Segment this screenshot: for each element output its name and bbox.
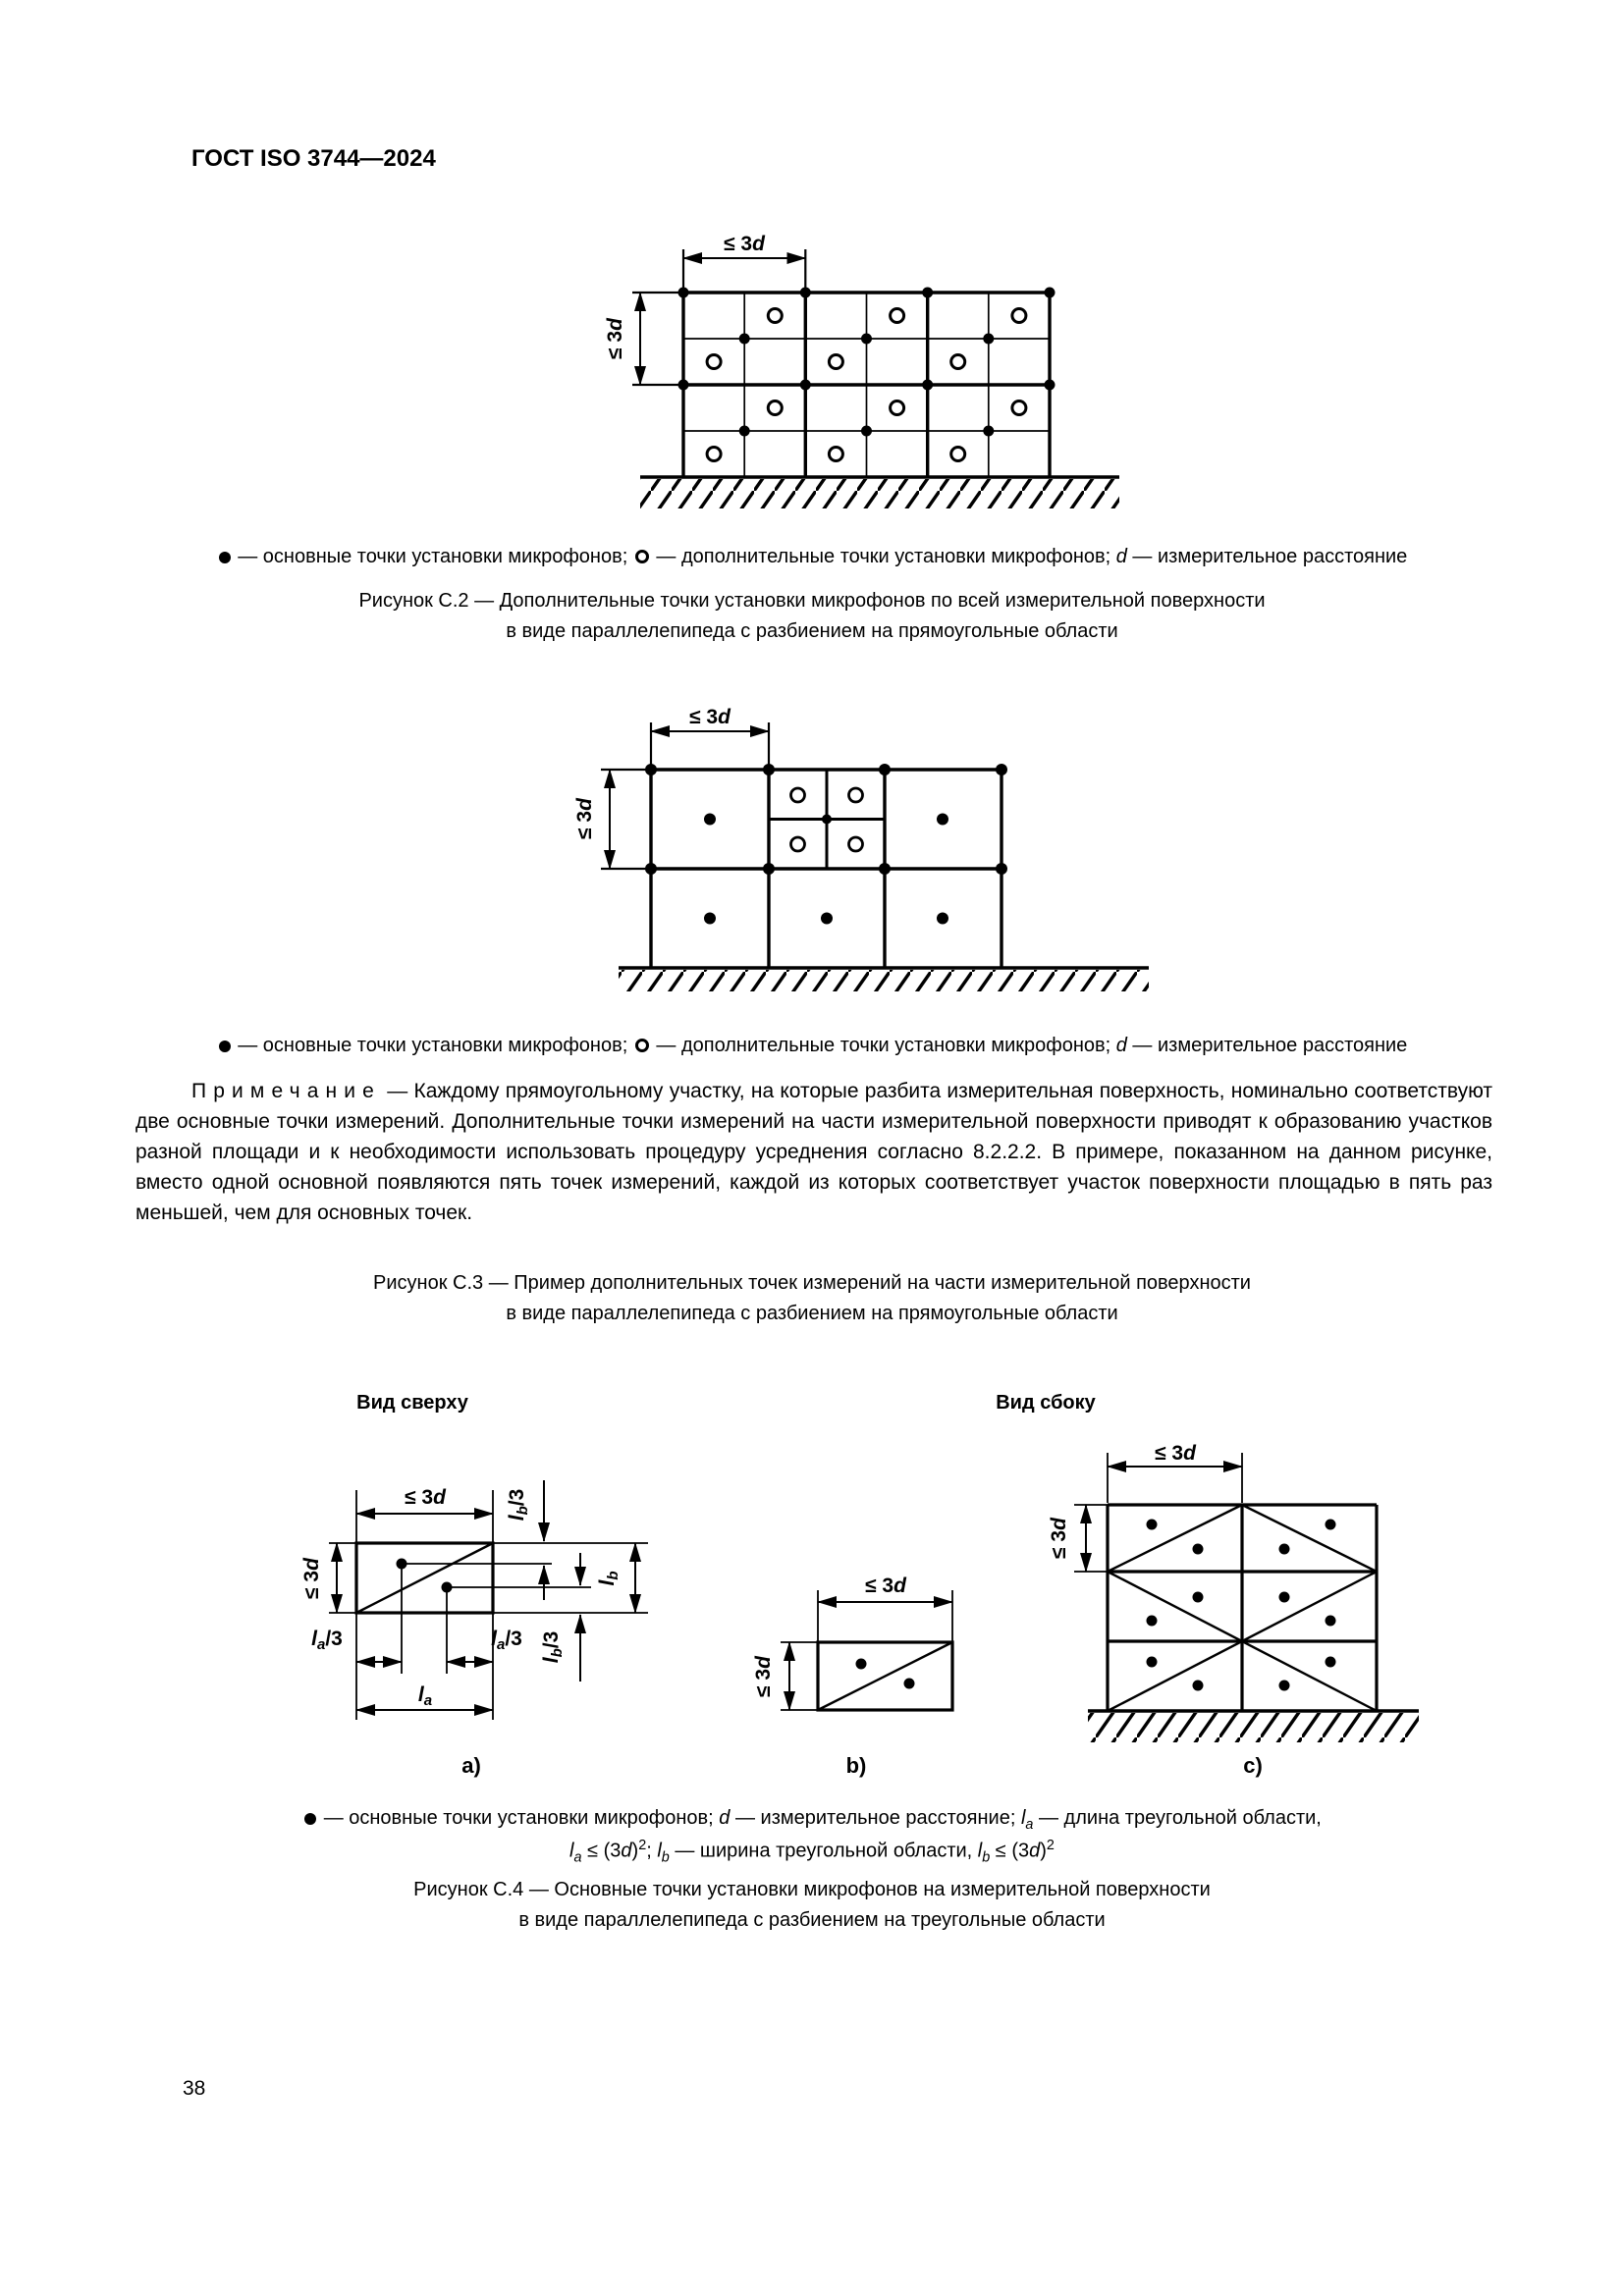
microphone-point [996, 764, 1007, 775]
microphone-point [879, 863, 891, 875]
dim-label-3d: ≤ 3d [865, 1575, 907, 1597]
figure-c2-caption-line1: Рисунок С.2 — Дополнительные точки устан… [128, 590, 1496, 613]
microphone-point [1193, 1681, 1204, 1691]
dimension-3d-horizontal: ≤ 3d [818, 1575, 952, 1602]
symbol-d: d [1116, 546, 1127, 567]
dim-label-lb3: lb/3 [506, 1489, 531, 1522]
main-point-symbol [219, 552, 231, 563]
additional-point [1012, 401, 1026, 415]
figure-c4-legend-line2: la ≤ (3d)2; lb — ширина треугольной обла… [128, 1838, 1496, 1866]
figure-c4-caption-line1: Рисунок С.4 — Основные точки установки м… [128, 1879, 1496, 1901]
dimension-la: la [356, 1683, 493, 1710]
additional-point [791, 837, 805, 851]
view-side-label: Вид сбоку [947, 1392, 1144, 1415]
figure-c4-caption-line2: в виде параллелепипеда с разбиением на т… [128, 1909, 1496, 1932]
dimension-lb: lb [596, 1543, 635, 1613]
additional-point [768, 309, 782, 323]
dim-label-lb: lb [596, 1571, 622, 1585]
microphone-point [739, 334, 750, 345]
microphone-point [1326, 1616, 1336, 1627]
figure-c2-caption-line2: в виде параллелепипеда с разбиением на п… [128, 620, 1496, 643]
microphone-point [856, 1659, 867, 1670]
dim-label-la3: la/3 [311, 1628, 343, 1653]
ground-hatching [640, 479, 1119, 508]
dim-label-la: la [418, 1683, 432, 1709]
additional-point [849, 837, 863, 851]
le-3d-open: ≤ (3 [582, 1841, 622, 1862]
additional-point [951, 448, 965, 461]
microphone-point [1279, 1592, 1290, 1603]
legend-main-text: — основные точки установки микрофонов; [233, 546, 633, 567]
note-paragraph: Примечание — Каждому прямоугольному учас… [135, 1076, 1492, 1228]
legend-distance-text: — измерительное расстояние [1127, 1035, 1407, 1056]
microphone-point [1147, 1520, 1158, 1530]
legend-additional-text: — дополнительные точки установки микрофо… [651, 1035, 1116, 1056]
subfigure-a: ≤ 3d ≤ 3d lb/3 lb/3 lb la/3 [300, 1480, 648, 1778]
dimension-lb3-top: lb/3 [506, 1480, 544, 1600]
dimension-3d-horizontal: ≤ 3d [651, 706, 769, 768]
additional-point [829, 355, 842, 369]
microphone-point [1045, 288, 1056, 298]
subfigure-c: ≤ 3d ≤ 3d c) [1048, 1443, 1419, 1778]
dim-label-3d: ≤ 3d [573, 797, 596, 839]
additional-point-symbol [635, 1039, 649, 1052]
microphone-point [1193, 1544, 1204, 1555]
document-page: ГОСТ ISO 3744—2024 [0, 0, 1624, 2296]
subfigure-a-label: a) [461, 1753, 481, 1778]
page-header: ГОСТ ISO 3744—2024 [191, 145, 436, 173]
dimension-3d-vertical: ≤ 3d [300, 1543, 337, 1613]
grid-main-lines [1108, 1505, 1377, 1711]
additional-point-symbol [635, 550, 649, 563]
legend-distance-text: — измерительное расстояние; [730, 1807, 1021, 1829]
note-label: Примечание [191, 1080, 381, 1102]
microphone-point [861, 426, 872, 437]
microphone-point [704, 913, 716, 925]
additional-point [849, 788, 863, 802]
microphone-point [800, 380, 811, 391]
microphone-point [1147, 1657, 1158, 1668]
microphone-point [442, 1582, 453, 1593]
additional-point [829, 448, 842, 461]
dimension-3d-horizontal: ≤ 3d [1108, 1443, 1242, 1503]
additional-point [768, 401, 782, 415]
triangle-diagonal [356, 1543, 493, 1613]
ground-hatching [1088, 1713, 1419, 1742]
microphone-point [821, 913, 833, 925]
symbol-la-sub: a [574, 1850, 582, 1866]
microphone-point [704, 814, 716, 826]
dim-label-3d: ≤ 3d [1048, 1517, 1070, 1559]
subfigure-c-label: c) [1243, 1753, 1263, 1778]
additional-point [951, 355, 965, 369]
dim-label-lb3: lb/3 [540, 1631, 566, 1664]
symbol-d: d [719, 1807, 730, 1829]
triangle-diagonal [818, 1642, 952, 1710]
microphone-point [1193, 1592, 1204, 1603]
dim-label-3d: ≤ 3d [604, 317, 626, 359]
legend-additional-text: — дополнительные точки установки микрофо… [651, 546, 1116, 567]
dimension-3d-vertical: ≤ 3d [752, 1642, 789, 1710]
microphone-point [1279, 1544, 1290, 1555]
main-point-symbol [219, 1041, 231, 1052]
microphone-point [904, 1679, 915, 1689]
dimension-3d-vertical: ≤ 3d [1048, 1505, 1108, 1572]
view-top-label: Вид сверху [314, 1392, 511, 1415]
legend-main-text: — основные точки установки микрофонов; [233, 1035, 633, 1056]
microphone-point [922, 380, 933, 391]
dimension-lb3-bottom: lb/3 [540, 1553, 580, 1682]
microphone-point [1045, 380, 1056, 391]
dimension-3d-horizontal: ≤ 3d [683, 233, 805, 291]
subfigure-b-label: b) [846, 1753, 867, 1778]
dim-label-3d: ≤ 3d [405, 1486, 447, 1509]
legend-distance-text: — измерительное расстояние [1127, 546, 1407, 567]
subfigure-b: ≤ 3d ≤ 3d b) [752, 1575, 952, 1778]
microphone-point [1326, 1520, 1336, 1530]
main-point-symbol [304, 1813, 316, 1825]
symbol-d: d [1116, 1035, 1127, 1056]
dim-label-3d: ≤ 3d [724, 233, 766, 255]
squared: 2 [1047, 1838, 1055, 1853]
dim-label-3d: ≤ 3d [300, 1557, 323, 1599]
microphone-point [937, 814, 948, 826]
squared: 2 [638, 1838, 646, 1853]
symbol-d: d [621, 1841, 631, 1862]
microphone-point [937, 913, 948, 925]
microphone-point [397, 1559, 407, 1570]
extension-lines [781, 1590, 952, 1710]
separator: ; [646, 1841, 657, 1862]
figure-c2-legend: — основные точки установки микрофонов; —… [128, 546, 1496, 568]
microphone-point [739, 426, 750, 437]
dim-label-3d: ≤ 3d [689, 706, 731, 728]
dim-label-3d: ≤ 3d [752, 1655, 775, 1697]
dim-label-la3: la/3 [491, 1628, 522, 1653]
dimension-la3-right: la/3 [447, 1628, 522, 1662]
dimension-3d-horizontal: ≤ 3d [356, 1486, 493, 1514]
additional-point [1012, 309, 1026, 323]
microphone-point [1279, 1681, 1290, 1691]
microphone-point [763, 863, 775, 875]
dimension-3d-vertical: ≤ 3d [573, 770, 651, 869]
microphone-point [983, 426, 994, 437]
additional-point [707, 355, 721, 369]
figure-c4-diagram: ≤ 3d ≤ 3d lb/3 lb/3 lb la/3 [147, 1443, 1492, 1782]
ground-hatching [619, 970, 1149, 991]
figure-c2-diagram: ≤ 3d ≤ 3d [589, 226, 1159, 510]
figure-c4-legend-line1: — основные точки установки микрофонов; d… [128, 1807, 1496, 1833]
figure-c3-legend: — основные точки установки микрофонов; —… [128, 1035, 1496, 1057]
microphone-point [983, 334, 994, 345]
additional-point [791, 788, 805, 802]
symbol-d: d [1029, 1841, 1040, 1862]
close-paren: ) [1040, 1841, 1047, 1862]
dimension-3d-vertical: ≤ 3d [604, 293, 683, 385]
microphone-point [861, 334, 872, 345]
microphone-point [996, 863, 1007, 875]
dim-label-3d: ≤ 3d [1155, 1443, 1197, 1465]
additional-point [891, 309, 904, 323]
additional-point [891, 401, 904, 415]
figure-c3-diagram: ≤ 3d ≤ 3d [560, 677, 1159, 991]
microphone-point [1326, 1657, 1336, 1668]
page-number: 38 [183, 2077, 205, 2101]
figure-c3-caption-line1: Рисунок С.3 — Пример дополнительных точе… [128, 1272, 1496, 1295]
legend-main-text: — основные точки установки микрофонов; [318, 1807, 719, 1829]
legend-width-text: — ширина треугольной области, [670, 1841, 978, 1862]
microphone-point [922, 288, 933, 298]
legend-length-text: — длина треугольной области, [1033, 1807, 1321, 1829]
microphone-point [879, 764, 891, 775]
le-3d-open: ≤ (3 [990, 1841, 1029, 1862]
extension-lines [329, 1490, 648, 1720]
additional-point [707, 448, 721, 461]
microphone-point [822, 815, 832, 825]
symbol-lb-sub: b [662, 1850, 670, 1866]
microphone-point [1147, 1616, 1158, 1627]
figure-c3-caption-line2: в виде параллелепипеда с разбиением на п… [128, 1303, 1496, 1325]
